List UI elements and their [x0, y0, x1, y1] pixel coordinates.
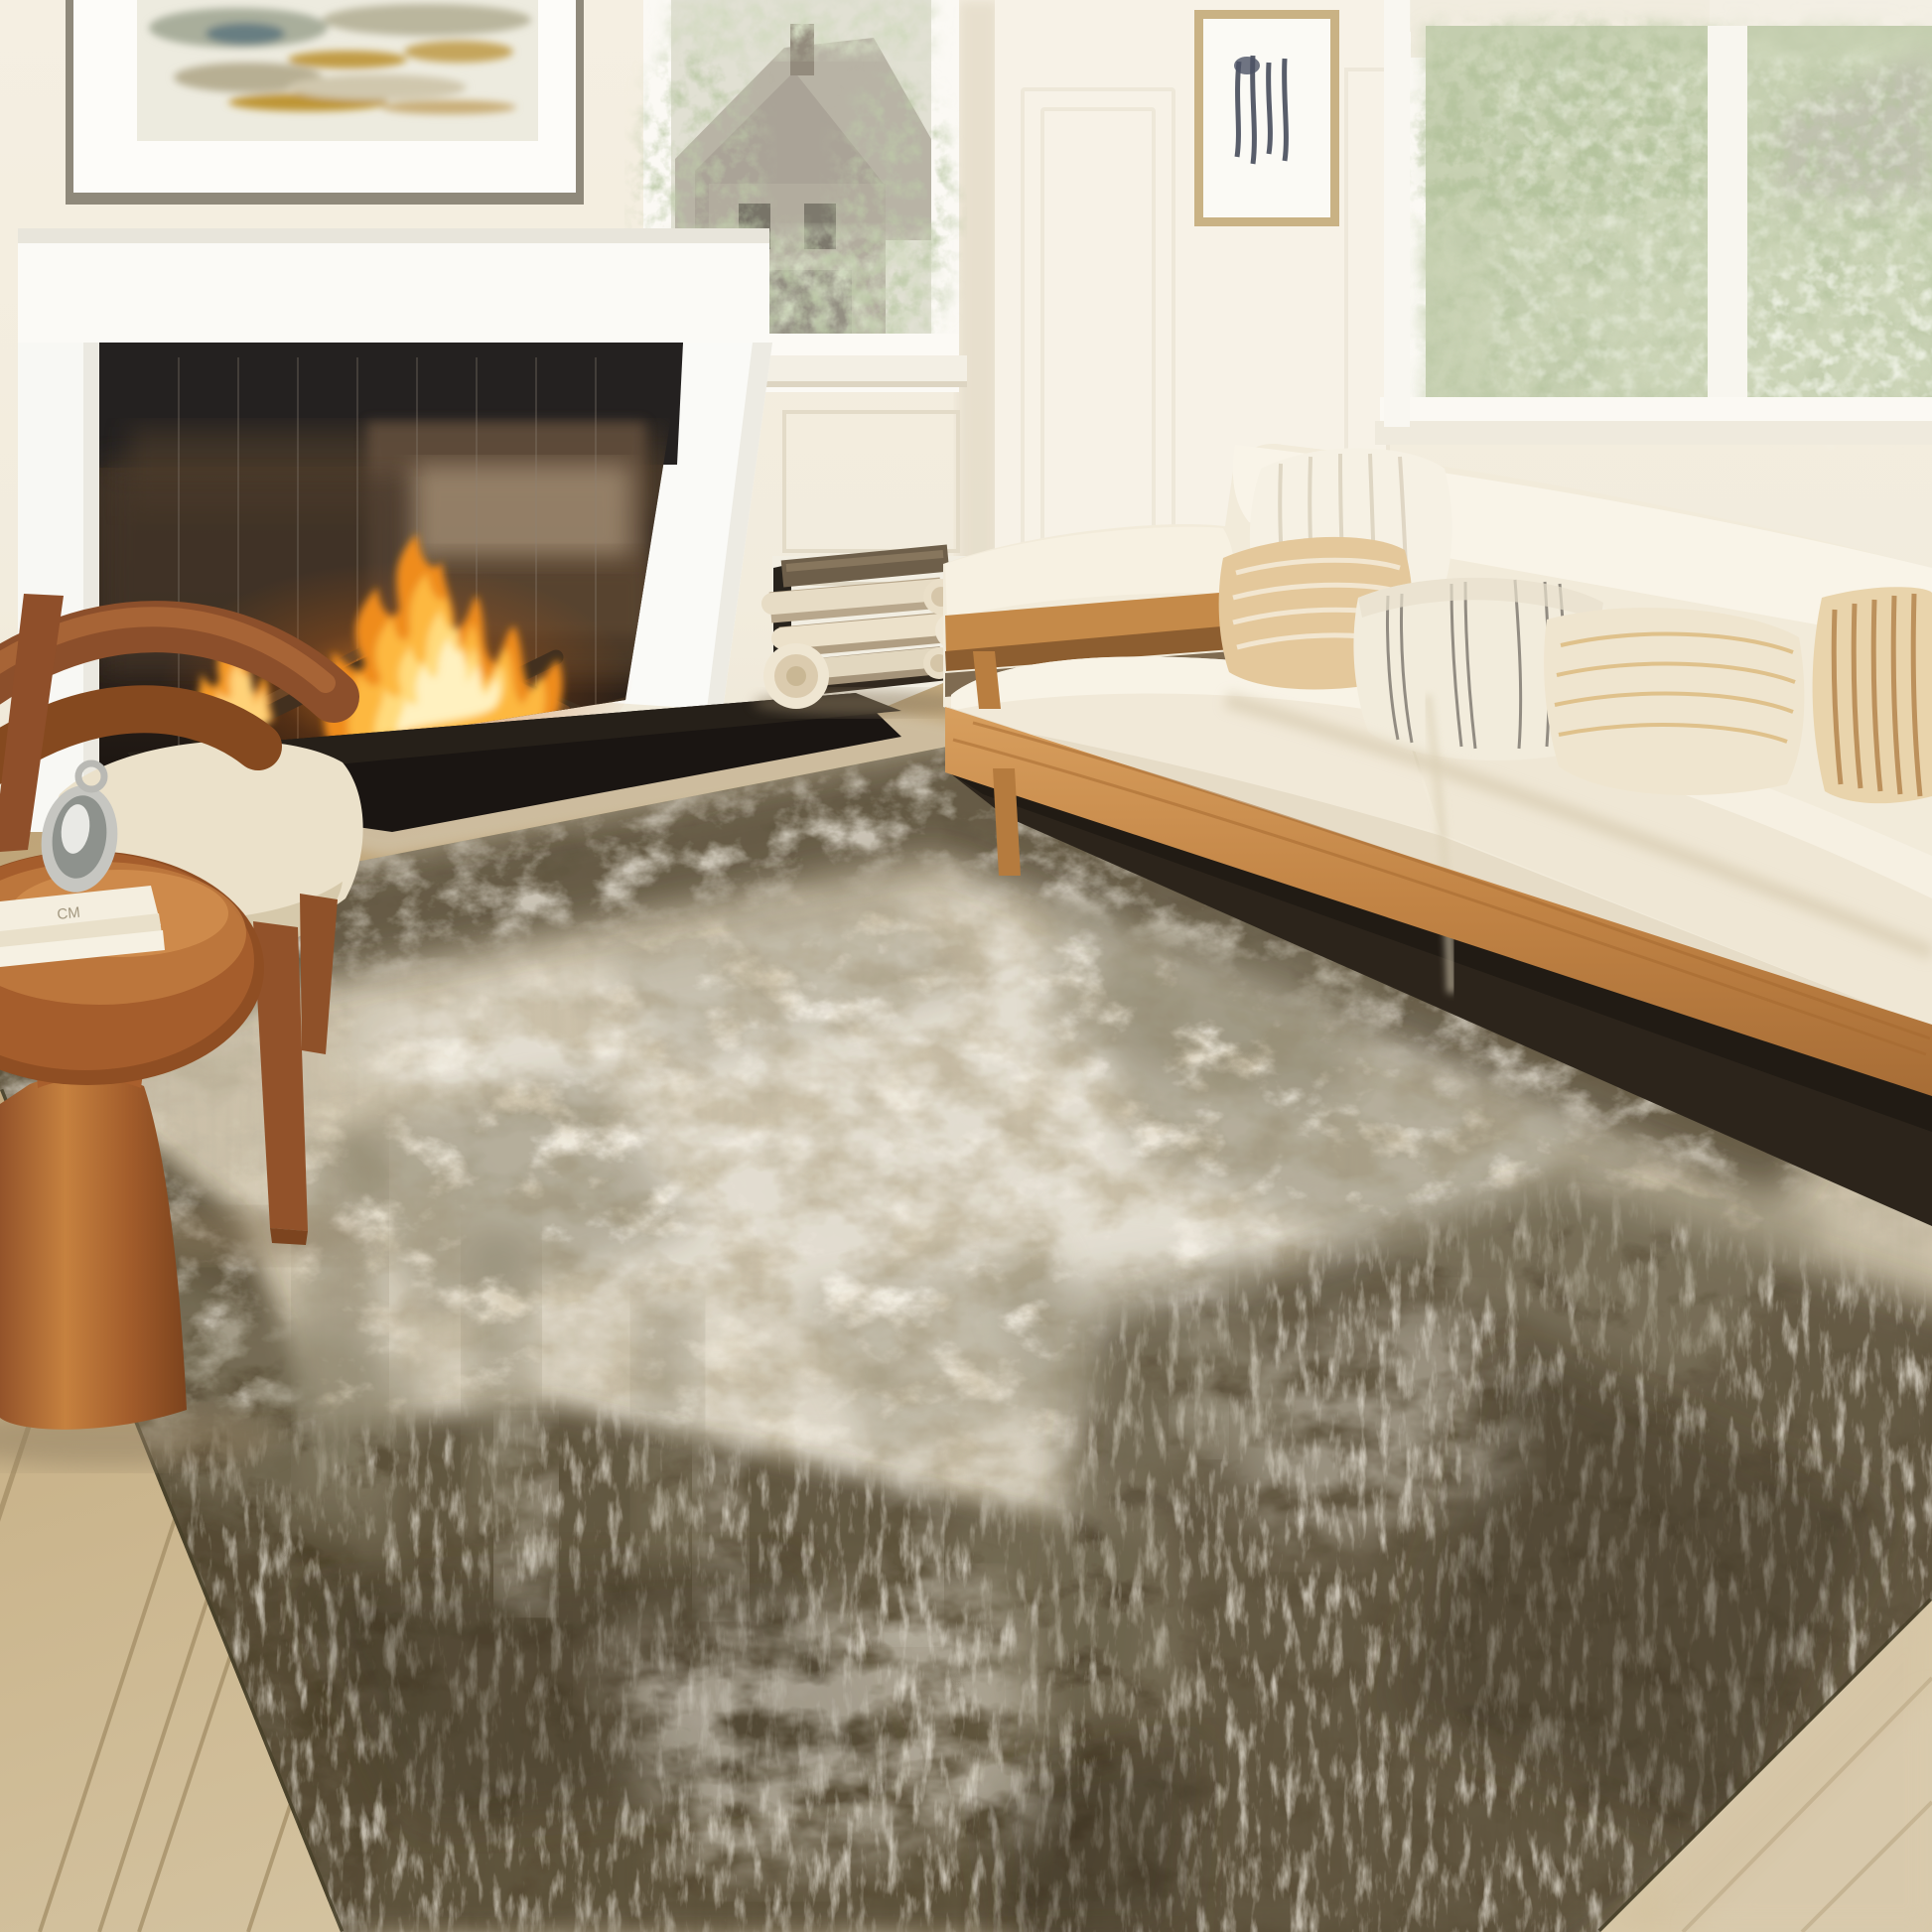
svg-text:CM: CM — [57, 904, 81, 923]
